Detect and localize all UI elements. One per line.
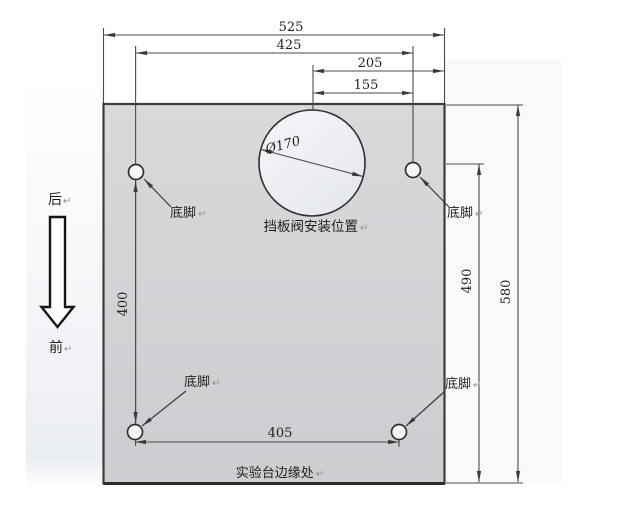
- foot-hole-bottom-right: [392, 425, 407, 440]
- engineering-drawing-page: 525 425 205 155 405 400 490 580 Ø170 底脚↵…: [0, 0, 638, 532]
- engineering-drawing-canvas: 525 425 205 155 405 400 490 580 Ø170 底脚↵…: [0, 0, 638, 532]
- return-mark-icon: ↵: [212, 378, 220, 389]
- dim-text-top-holes-span: 425: [277, 38, 302, 53]
- dim-text-center-to-right-hole: 155: [354, 78, 379, 93]
- dim-text-total-height: 580: [499, 280, 514, 305]
- dim-text-total-width: 525: [279, 20, 304, 35]
- dim-text-center-to-right-edge: 205: [358, 56, 383, 71]
- valve-position-label: 挡板阀安装位置↵: [264, 219, 369, 235]
- return-mark-icon: ↵: [360, 223, 368, 234]
- dim-text-right-hole-to-bottom: 490: [460, 269, 475, 294]
- foot-hole-top-right: [406, 163, 421, 178]
- return-mark-icon: ↵: [475, 209, 483, 220]
- return-mark-icon: ↵: [63, 196, 71, 207]
- foot-hole-bottom-left: [128, 425, 143, 440]
- dim-text-bottom-holes-span: 405: [268, 426, 293, 441]
- dim-text-left-holes-span: 400: [116, 292, 131, 317]
- table-edge-label: 实验台边缘处↵: [236, 465, 324, 481]
- return-mark-icon: ↵: [198, 209, 206, 220]
- return-mark-icon: ↵: [64, 344, 72, 355]
- return-mark-icon: ↵: [316, 469, 324, 480]
- foot-hole-top-left: [129, 165, 144, 180]
- return-mark-icon: ↵: [473, 380, 481, 391]
